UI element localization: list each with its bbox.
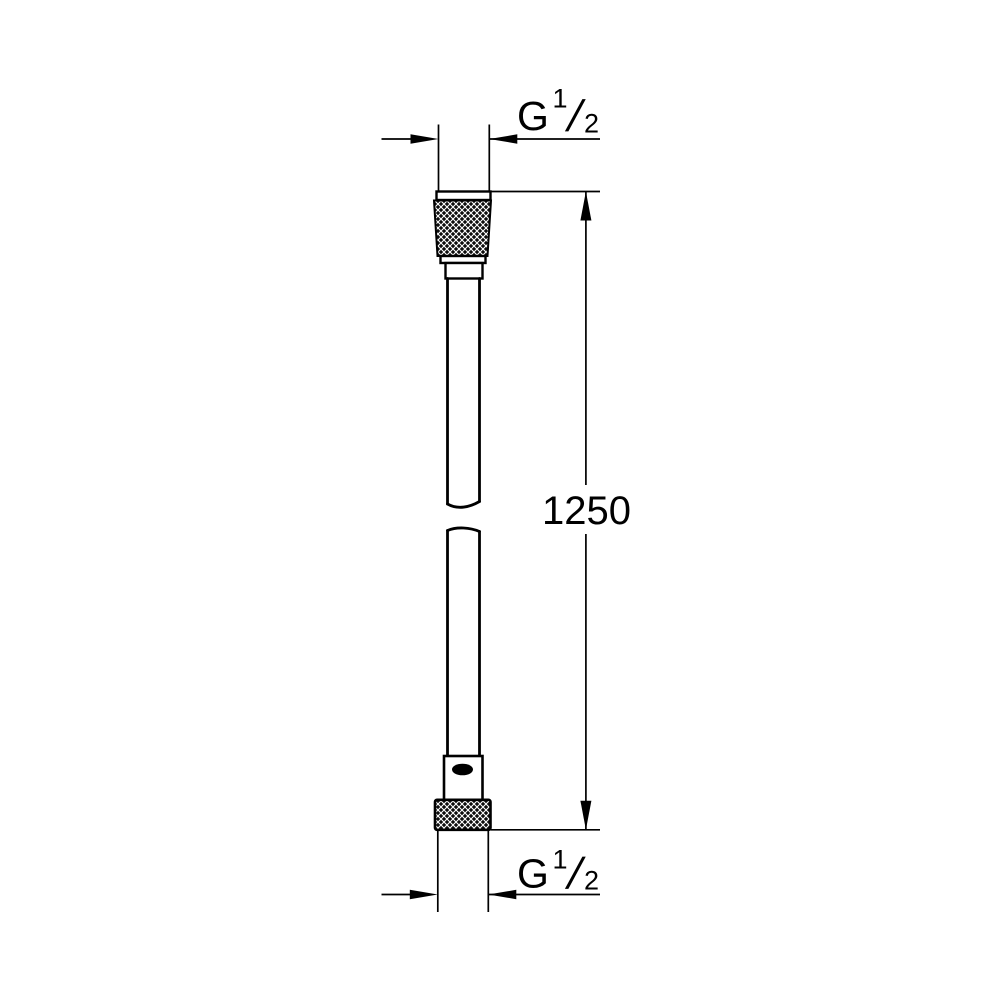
top-thread-denominator-text: 2 (584, 109, 599, 139)
top-dim-arrow-left-icon (489, 134, 517, 143)
top-dim-arrow-right-icon (411, 134, 439, 143)
hose-break-lower-edge (448, 528, 480, 532)
top-thread-numerator-text: 1 (553, 84, 568, 114)
top-connector-knurl (434, 201, 491, 257)
top-connector (434, 192, 491, 279)
hose-body (448, 279, 480, 757)
bottom-fitting-body (444, 756, 483, 800)
top-thread-label: G 1 / 2 (517, 84, 599, 141)
hose-break-upper-edge (448, 502, 480, 508)
bottom-connector (435, 756, 491, 912)
top-connector-nipple (446, 263, 483, 279)
length-dim-arrow-up-icon (580, 192, 591, 221)
length-dimension-value: 1250 (542, 489, 631, 533)
bottom-dim-arrow-right-icon (410, 890, 438, 899)
bottom-thread-label: G 1 / 2 (517, 845, 599, 899)
bottom-thread-base-text: G (517, 851, 549, 897)
length-dim-arrow-down-icon (580, 801, 591, 830)
bottom-dim-arrow-left-icon (488, 890, 516, 899)
drawing-canvas: G 1 / 2 (0, 0, 1000, 1000)
bottom-thread-denominator-text: 2 (584, 866, 599, 896)
bottom-thread-numerator-text: 1 (553, 845, 568, 875)
bottom-connector-knurl-nut (435, 800, 491, 830)
top-connector-upper-band (437, 192, 491, 201)
bottom-fitting-marking (452, 764, 473, 776)
hose-technical-drawing: G 1 / 2 (0, 0, 1000, 1000)
top-thread-base-text: G (517, 93, 549, 139)
